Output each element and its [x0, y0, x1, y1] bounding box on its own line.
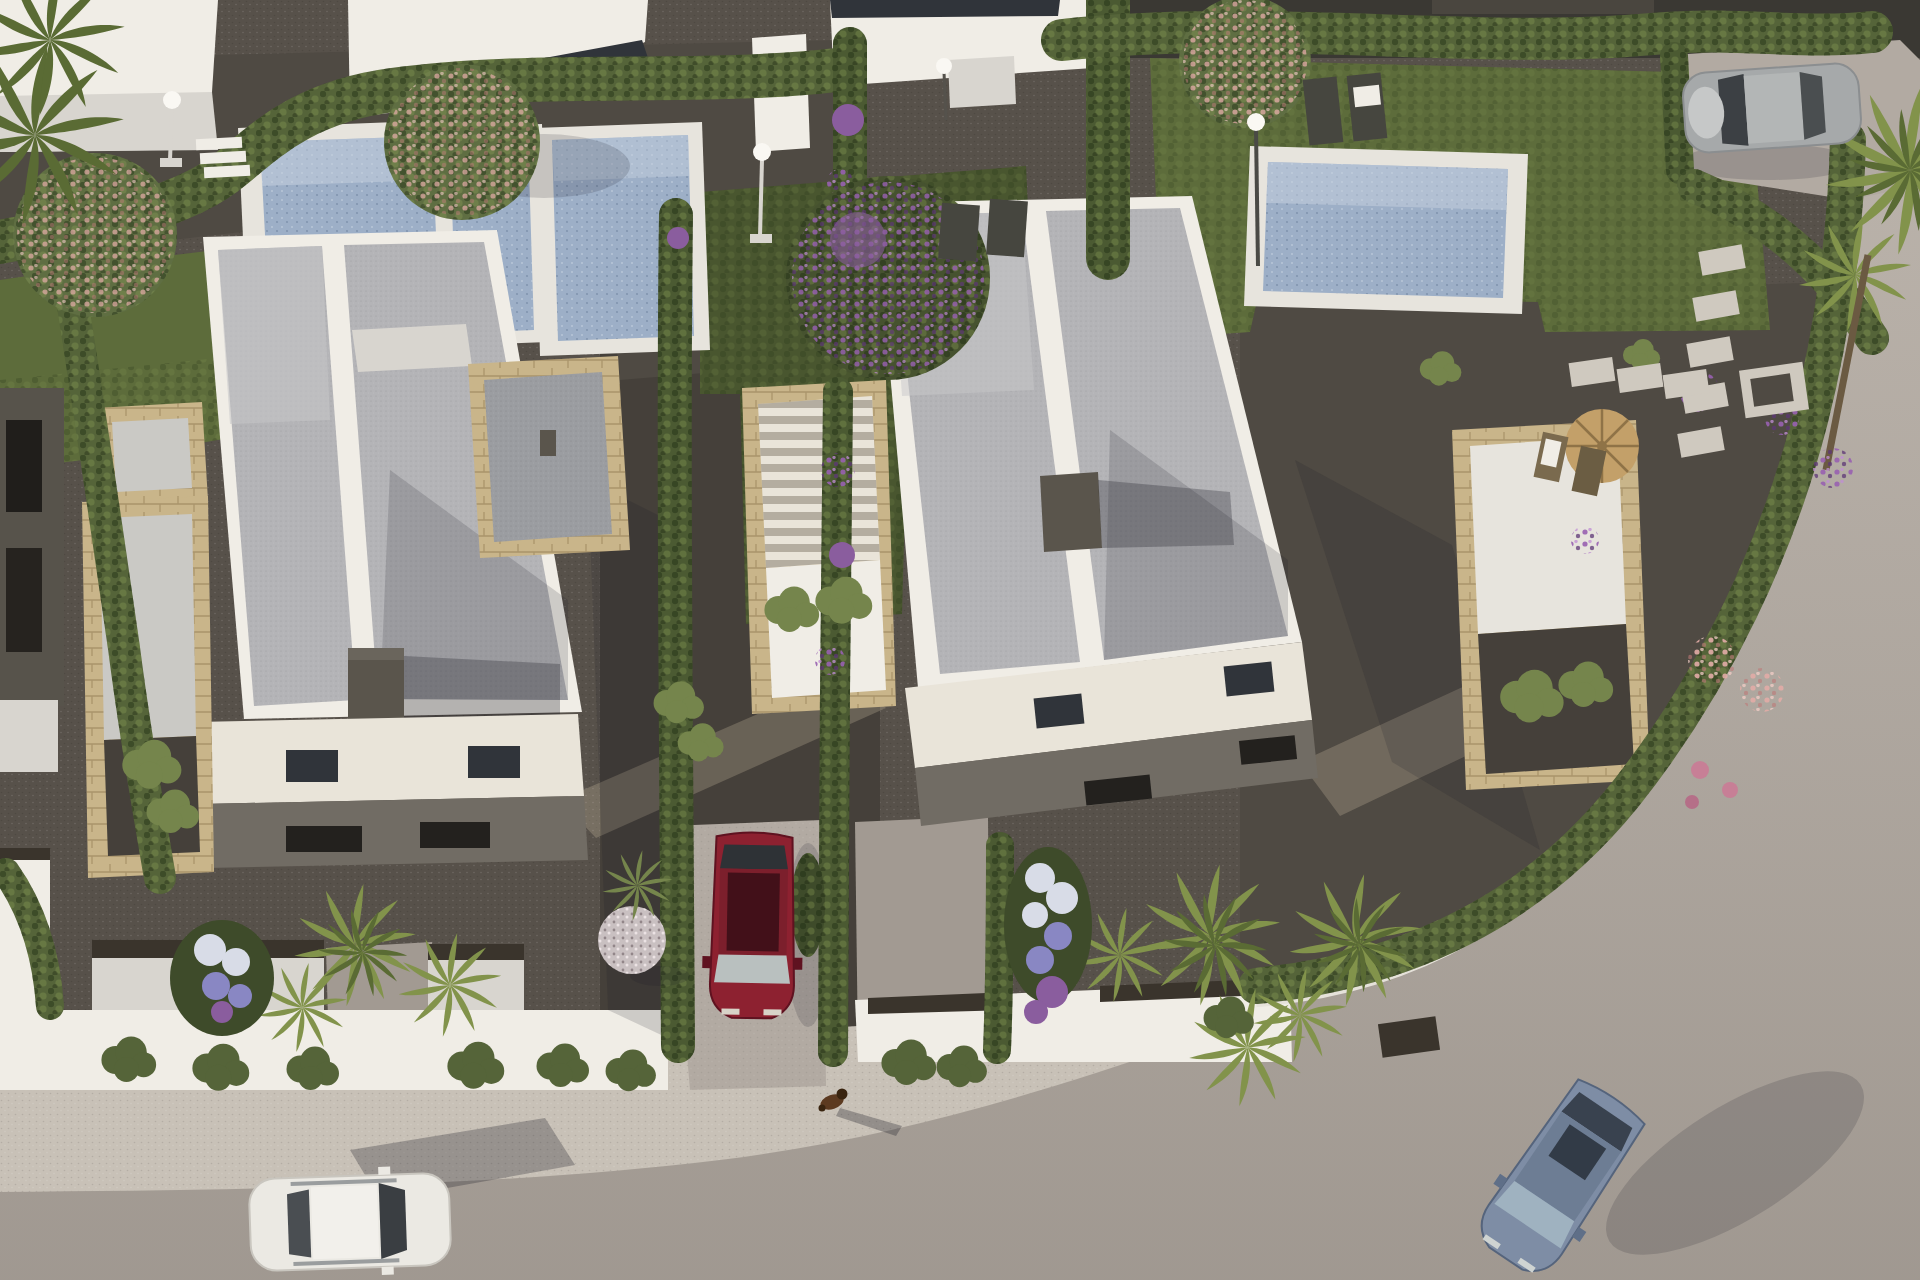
villa-right-chimney [1040, 472, 1102, 552]
red-car-rear-window [720, 844, 788, 869]
flowering-tree-left [13, 153, 177, 317]
flowering-tree-top [384, 64, 540, 220]
red-car-mirror-right [793, 958, 802, 970]
pool-4-reflection [1266, 162, 1508, 210]
bougainvillea-7 [667, 227, 689, 249]
villa-left-facade [202, 796, 588, 868]
villa-left-chimney-shadow [404, 656, 560, 722]
flower-bed-left [170, 920, 274, 1036]
red-car-mirror-left [702, 956, 711, 968]
bougainvillea-6 [815, 645, 845, 675]
villa-left-roof-deck [352, 324, 472, 372]
wall-upper-2 [428, 960, 524, 1010]
building-top-4-roofline [1432, 0, 1654, 14]
building-left-ledge [0, 700, 58, 772]
building-left-window-1 [6, 420, 42, 512]
small-dark-tree-front [791, 853, 825, 957]
bougainvillea-1 [832, 104, 864, 136]
building-top-3-glass [830, 0, 1060, 18]
villa-right-skylight-1 [1034, 694, 1085, 729]
villa-left-skylight-2 [468, 746, 520, 778]
dog-tail [819, 1105, 826, 1112]
silver-car [1681, 62, 1862, 154]
villa-right-skylight-2 [1224, 662, 1275, 697]
hedge-parking-pad-left [1674, 56, 1680, 170]
villa-left-lower-roof [196, 714, 584, 804]
white-car [248, 1165, 452, 1280]
white-car-windshield [379, 1182, 408, 1259]
hedge-central-column-b [833, 392, 838, 1052]
flowering-tree-top-right [1179, 0, 1311, 128]
villa-left-window-1 [286, 826, 362, 852]
red-car-headlight-right [763, 1009, 781, 1015]
white-car-rear-window [287, 1189, 311, 1258]
pool-4 [1244, 146, 1528, 314]
building-top-3-steps [948, 56, 1016, 108]
red-car-headlight-left [721, 1008, 739, 1014]
villa-left-roof-sunlit [218, 246, 330, 424]
bougainvillea-5 [829, 542, 855, 568]
red-car [701, 832, 804, 1019]
dog-head [837, 1089, 848, 1100]
aerial-render [0, 0, 1920, 1280]
villa-left-window-2 [420, 822, 490, 848]
villa-left-skylight-1 [286, 750, 338, 782]
villa-right-pergola-slats-texture [758, 396, 880, 568]
bougainvillea-4 [821, 453, 855, 487]
doormat [1750, 373, 1794, 406]
villa-left-upper-box-floor [112, 418, 192, 492]
red-car-windshield [714, 954, 790, 983]
red-car-roof-glass [727, 873, 780, 952]
villa-left-garage-roof-texture [484, 372, 612, 542]
villa-left-chimney-top [348, 648, 404, 660]
building-left-window-2 [6, 548, 42, 652]
villa-left-roof-vent [540, 430, 556, 456]
hedge-central-column-a [675, 215, 678, 1046]
white-car-roof [311, 1185, 379, 1259]
hedge-right-front-path [997, 846, 1000, 1050]
silver-car-roof [1744, 72, 1805, 144]
